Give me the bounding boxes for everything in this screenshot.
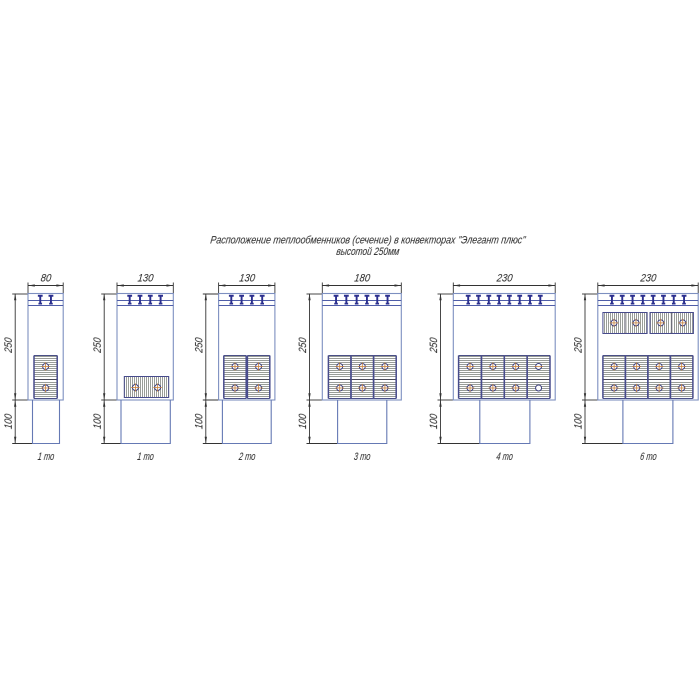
svg-text:Расположение теплообменников (: Расположение теплообменников (сечение) в…: [210, 235, 527, 247]
svg-text:100: 100: [193, 413, 205, 430]
svg-text:3 то: 3 то: [353, 451, 371, 463]
svg-text:100: 100: [3, 413, 15, 430]
svg-text:6 то: 6 то: [639, 451, 657, 463]
svg-text:100: 100: [573, 413, 585, 430]
svg-text:1 то: 1 то: [37, 451, 55, 463]
svg-text:230: 230: [639, 273, 657, 285]
svg-text:высотой 250мм: высотой 250мм: [336, 246, 401, 258]
svg-text:1 то: 1 то: [137, 451, 155, 463]
svg-text:80: 80: [40, 273, 52, 285]
svg-text:250: 250: [573, 337, 585, 354]
svg-text:180: 180: [354, 273, 371, 285]
svg-text:2 то: 2 то: [237, 451, 256, 463]
svg-text:250: 250: [193, 337, 205, 354]
svg-text:100: 100: [297, 413, 309, 430]
svg-text:250: 250: [92, 337, 104, 354]
svg-text:100: 100: [428, 413, 440, 430]
svg-text:130: 130: [137, 273, 154, 285]
svg-text:230: 230: [495, 273, 513, 285]
svg-text:130: 130: [238, 273, 255, 285]
svg-text:250: 250: [428, 337, 440, 354]
svg-text:4 то: 4 то: [496, 451, 514, 463]
svg-text:250: 250: [297, 337, 309, 354]
svg-text:250: 250: [3, 337, 15, 354]
svg-text:100: 100: [92, 413, 104, 430]
